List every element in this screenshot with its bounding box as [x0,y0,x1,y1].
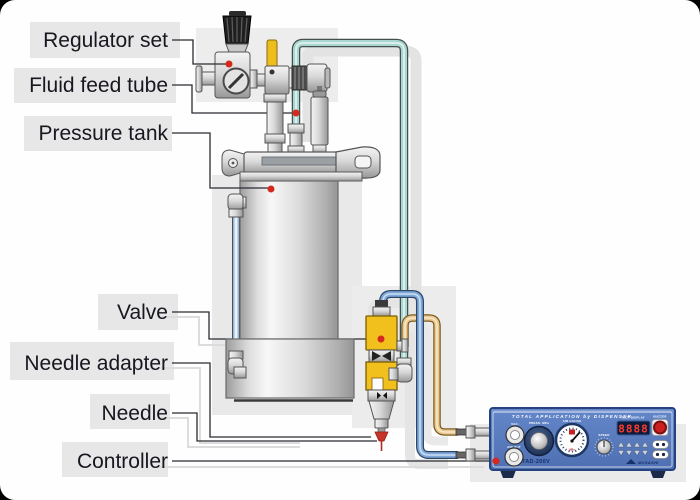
level-tube-elbow-bottom [228,351,246,378]
valve-clamp [368,390,395,401]
fluid-tube-lid-fitting [288,124,304,133]
tee-fitting [265,66,289,94]
pressure-tank [226,181,354,401]
buzzer-label: BUZZER [653,415,667,419]
label-valve: Valve [117,301,168,324]
marker-tank [268,186,275,193]
speed-knob-label: SPEED [598,433,610,437]
needle-adapter [369,401,394,419]
pressure-knob-label: PRESS. MPa [529,421,549,425]
label-fluid-feed-tube: Fluid feed tube [29,74,168,97]
tact-display-label: TACT DISPLAY [621,416,645,420]
marker-regulator [226,61,233,68]
regulator-inlet-flange [196,66,202,92]
tact-display-value: 8888 [618,423,649,436]
air-down-pipe [267,102,283,134]
port1-label: VAC. [511,422,519,426]
diagram-stage: TOTAL APPLICATION by DISPENSER VAC. AIR … [0,0,700,500]
gauge-unit: MPa [569,448,575,452]
tank-lid [222,147,380,181]
label-needle-adapter: Needle adapter [24,352,168,375]
label-pressure-tank: Pressure tank [38,122,168,145]
marker-fluid-tube [293,110,300,117]
tank-body [240,181,338,339]
air-gauge-label: AIR GAUGE [563,419,582,423]
relief-valve [313,91,326,97]
valve-upper-body [366,316,397,350]
vacuum-port-fitting [402,339,408,352]
level-tube-elbow-top [228,194,246,217]
marker-controller [493,458,500,465]
controller-model: TAD-200V [522,459,550,465]
brand-logo-text: MUSASHI [638,460,659,465]
label-regulator-set: Regulator set [43,29,168,52]
dispensing-system-diagram: TOTAL APPLICATION by DISPENSER VAC. AIR … [0,0,700,500]
marker-valve [378,336,385,343]
label-needle: Needle [101,402,168,425]
buzzer-button[interactable] [654,422,666,434]
label-controller: Controller [77,450,168,473]
